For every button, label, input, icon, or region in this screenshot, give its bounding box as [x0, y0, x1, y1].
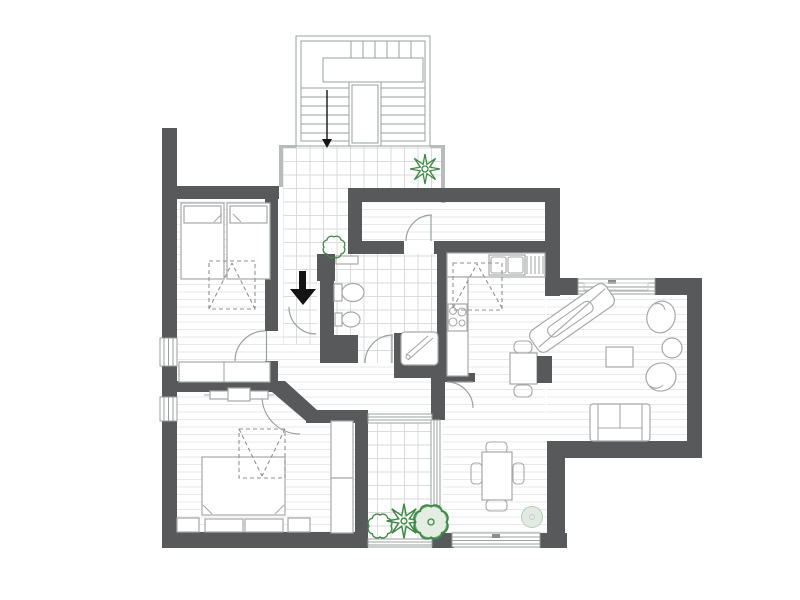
dining-table — [482, 452, 512, 500]
double-bed — [202, 457, 285, 515]
double-bed-pillow-right — [245, 519, 283, 532]
bedroom1-dresser — [179, 362, 270, 382]
single-bed-right-pillow — [230, 206, 267, 223]
floor-plan-canvas — [0, 0, 800, 600]
built-in-wardrobe-lower — [331, 478, 353, 533]
loggia-round-plant-icon — [414, 505, 447, 538]
terrace-tiles — [283, 146, 441, 188]
built-in-wardrobe-upper — [331, 421, 353, 478]
bedroom1-window-icon — [160, 338, 177, 366]
dark-chair — [537, 356, 552, 383]
loggia-bottom-window-icon — [368, 539, 432, 547]
toilet-icon — [334, 284, 364, 302]
dining-window-icon — [452, 533, 540, 547]
floor-plan-drawing — [0, 0, 800, 600]
stair-newel — [349, 82, 381, 146]
sink-icon — [489, 255, 543, 275]
cooktop-icon — [448, 304, 467, 331]
shower-icon — [401, 332, 438, 365]
pouf — [522, 507, 543, 528]
utility-room-floor — [362, 202, 545, 241]
bedroom2-window-icon — [160, 397, 177, 421]
staircase — [296, 36, 430, 148]
coffee-table — [606, 347, 633, 367]
loggia-top-window-icon — [368, 414, 432, 423]
round-side-table — [662, 338, 682, 358]
nightstand-right — [288, 518, 310, 532]
nightstand-left — [177, 518, 199, 532]
double-bed-pillow-left — [205, 519, 243, 532]
bidet-icon — [335, 312, 360, 327]
sofa — [590, 404, 650, 441]
entry-tiles-upper — [283, 188, 348, 265]
